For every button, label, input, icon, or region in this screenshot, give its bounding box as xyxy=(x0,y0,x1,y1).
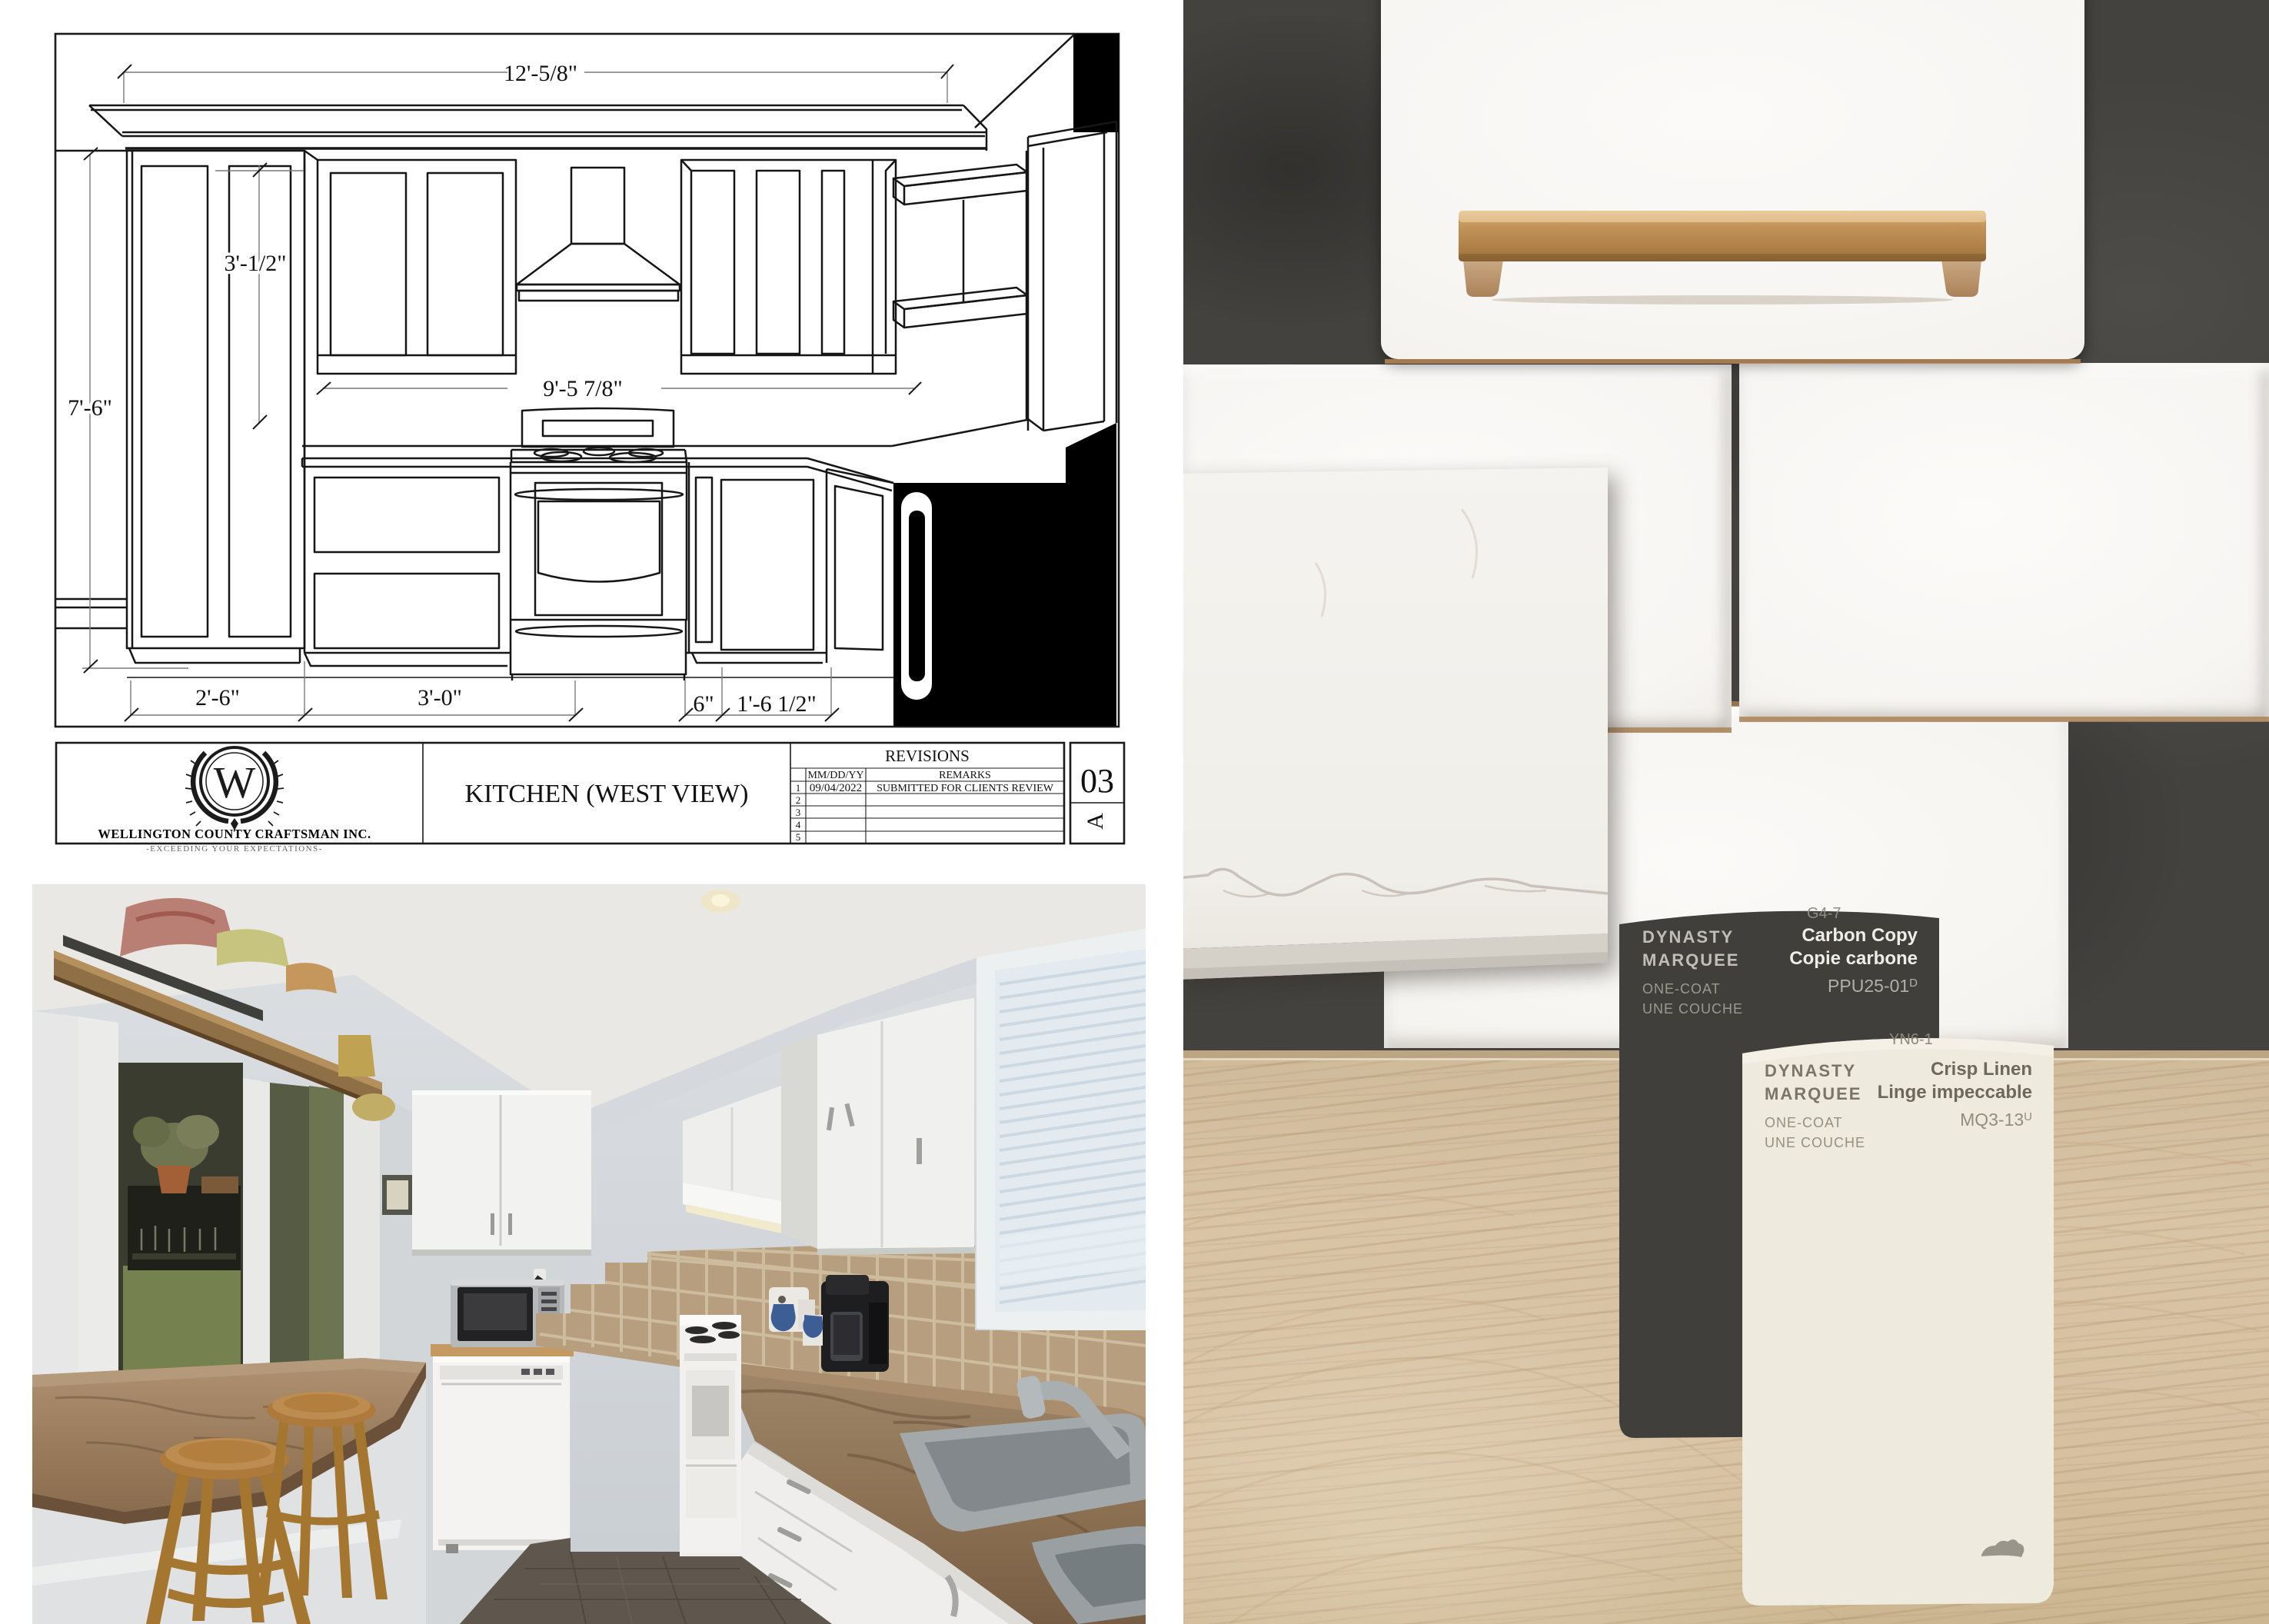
svg-text:Copie carbone: Copie carbone xyxy=(1789,948,1918,969)
svg-text:12'-5/8": 12'-5/8" xyxy=(504,61,577,86)
svg-text:UNE COUCHE: UNE COUCHE xyxy=(1765,1135,1865,1150)
svg-text:9'-5 7/8": 9'-5 7/8" xyxy=(543,376,622,401)
svg-text:DYNASTY: DYNASTY xyxy=(1642,927,1734,947)
svg-text:2'-6": 2'-6" xyxy=(195,685,240,710)
svg-text:4: 4 xyxy=(796,819,801,830)
svg-text:MM/DD/YY: MM/DD/YY xyxy=(807,770,863,781)
svg-text:MARQUEE: MARQUEE xyxy=(1642,950,1739,970)
svg-text:YN6-1: YN6-1 xyxy=(1889,1031,1933,1048)
svg-text:7'-6": 7'-6" xyxy=(68,395,112,421)
svg-text:A: A xyxy=(1083,813,1108,830)
svg-text:3'-1/2": 3'-1/2" xyxy=(225,251,287,276)
svg-text:09/04/2022: 09/04/2022 xyxy=(810,782,862,794)
svg-text:MARQUEE: MARQUEE xyxy=(1765,1084,1861,1103)
svg-text:PPU25-01D: PPU25-01D xyxy=(1828,976,1918,996)
svg-text:ONE-COAT: ONE-COAT xyxy=(1642,981,1721,997)
svg-text:MQ3-13U: MQ3-13U xyxy=(1960,1110,2032,1130)
svg-text:1'-6 1/2": 1'-6 1/2" xyxy=(737,691,816,717)
svg-text:-EXCEEDING YOUR EXPECTATIONS-: -EXCEEDING YOUR EXPECTATIONS- xyxy=(146,844,323,854)
svg-text:WELLINGTON COUNTY CRAFTSMAN IN: WELLINGTON COUNTY CRAFTSMAN INC. xyxy=(98,827,371,841)
svg-text:Crisp Linen: Crisp Linen xyxy=(1931,1059,2032,1080)
svg-text:3: 3 xyxy=(796,807,801,818)
svg-text:1: 1 xyxy=(796,782,801,794)
svg-text:SUBMITTED FOR CLIENTS REVIEW: SUBMITTED FOR CLIENTS REVIEW xyxy=(877,783,1054,794)
svg-text:KITCHEN (WEST VIEW): KITCHEN (WEST VIEW) xyxy=(465,780,749,808)
svg-text:UNE COUCHE: UNE COUCHE xyxy=(1642,1001,1743,1017)
svg-text:3'-0": 3'-0" xyxy=(418,685,462,710)
svg-text:03: 03 xyxy=(1080,762,1114,800)
svg-text:ONE-COAT: ONE-COAT xyxy=(1765,1115,1843,1130)
svg-text:DYNASTY: DYNASTY xyxy=(1765,1061,1856,1080)
svg-text:REMARKS: REMARKS xyxy=(939,770,991,781)
svg-text:Linge impeccable: Linge impeccable xyxy=(1878,1082,2032,1103)
svg-text:6": 6" xyxy=(693,691,714,717)
svg-text:Carbon Copy: Carbon Copy xyxy=(1802,925,1918,946)
svg-text:2: 2 xyxy=(796,794,801,806)
svg-text:G4-7: G4-7 xyxy=(1807,905,1841,922)
svg-text:W: W xyxy=(214,757,256,807)
svg-text:REVISIONS: REVISIONS xyxy=(885,747,970,765)
svg-text:5: 5 xyxy=(796,831,801,843)
